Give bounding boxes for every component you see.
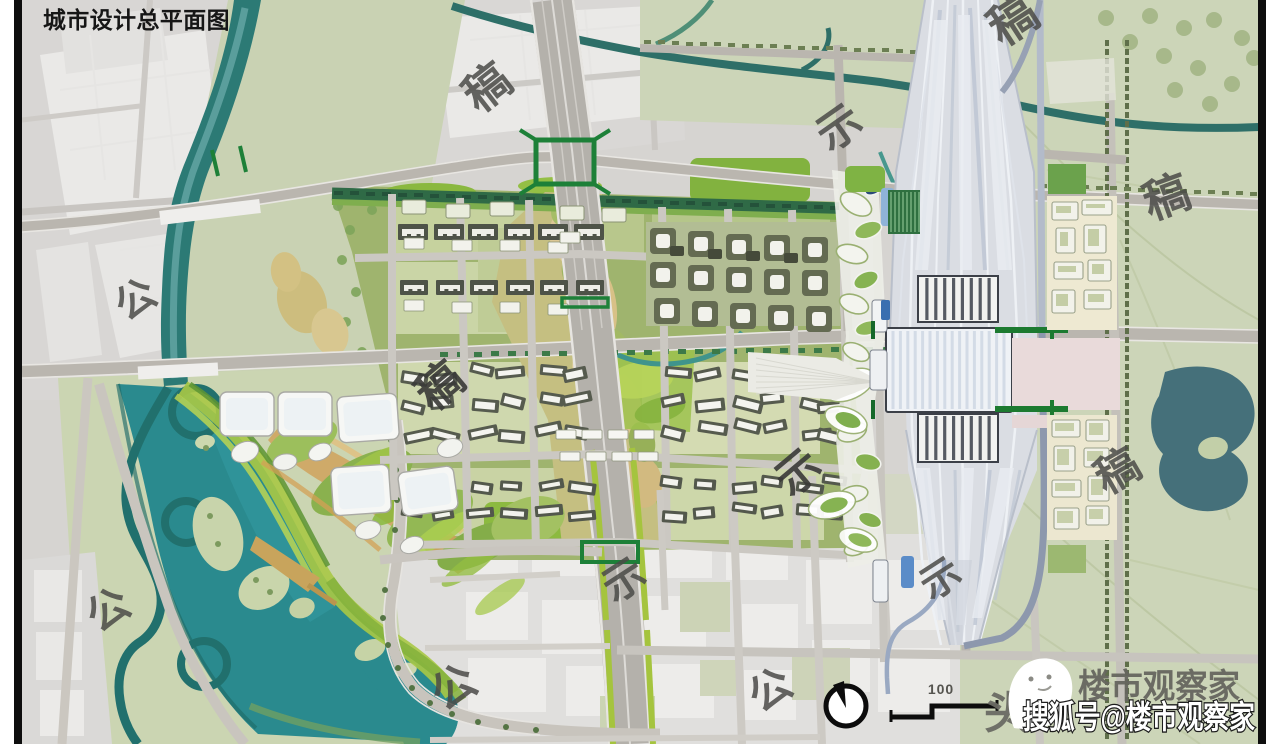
svg-text:100: 100	[928, 681, 954, 697]
svg-text:搜狐号@楼市观察家: 搜狐号@楼市观察家	[1023, 699, 1255, 735]
svg-text:城市设计总平面图: 城市设计总平面图	[43, 7, 230, 33]
